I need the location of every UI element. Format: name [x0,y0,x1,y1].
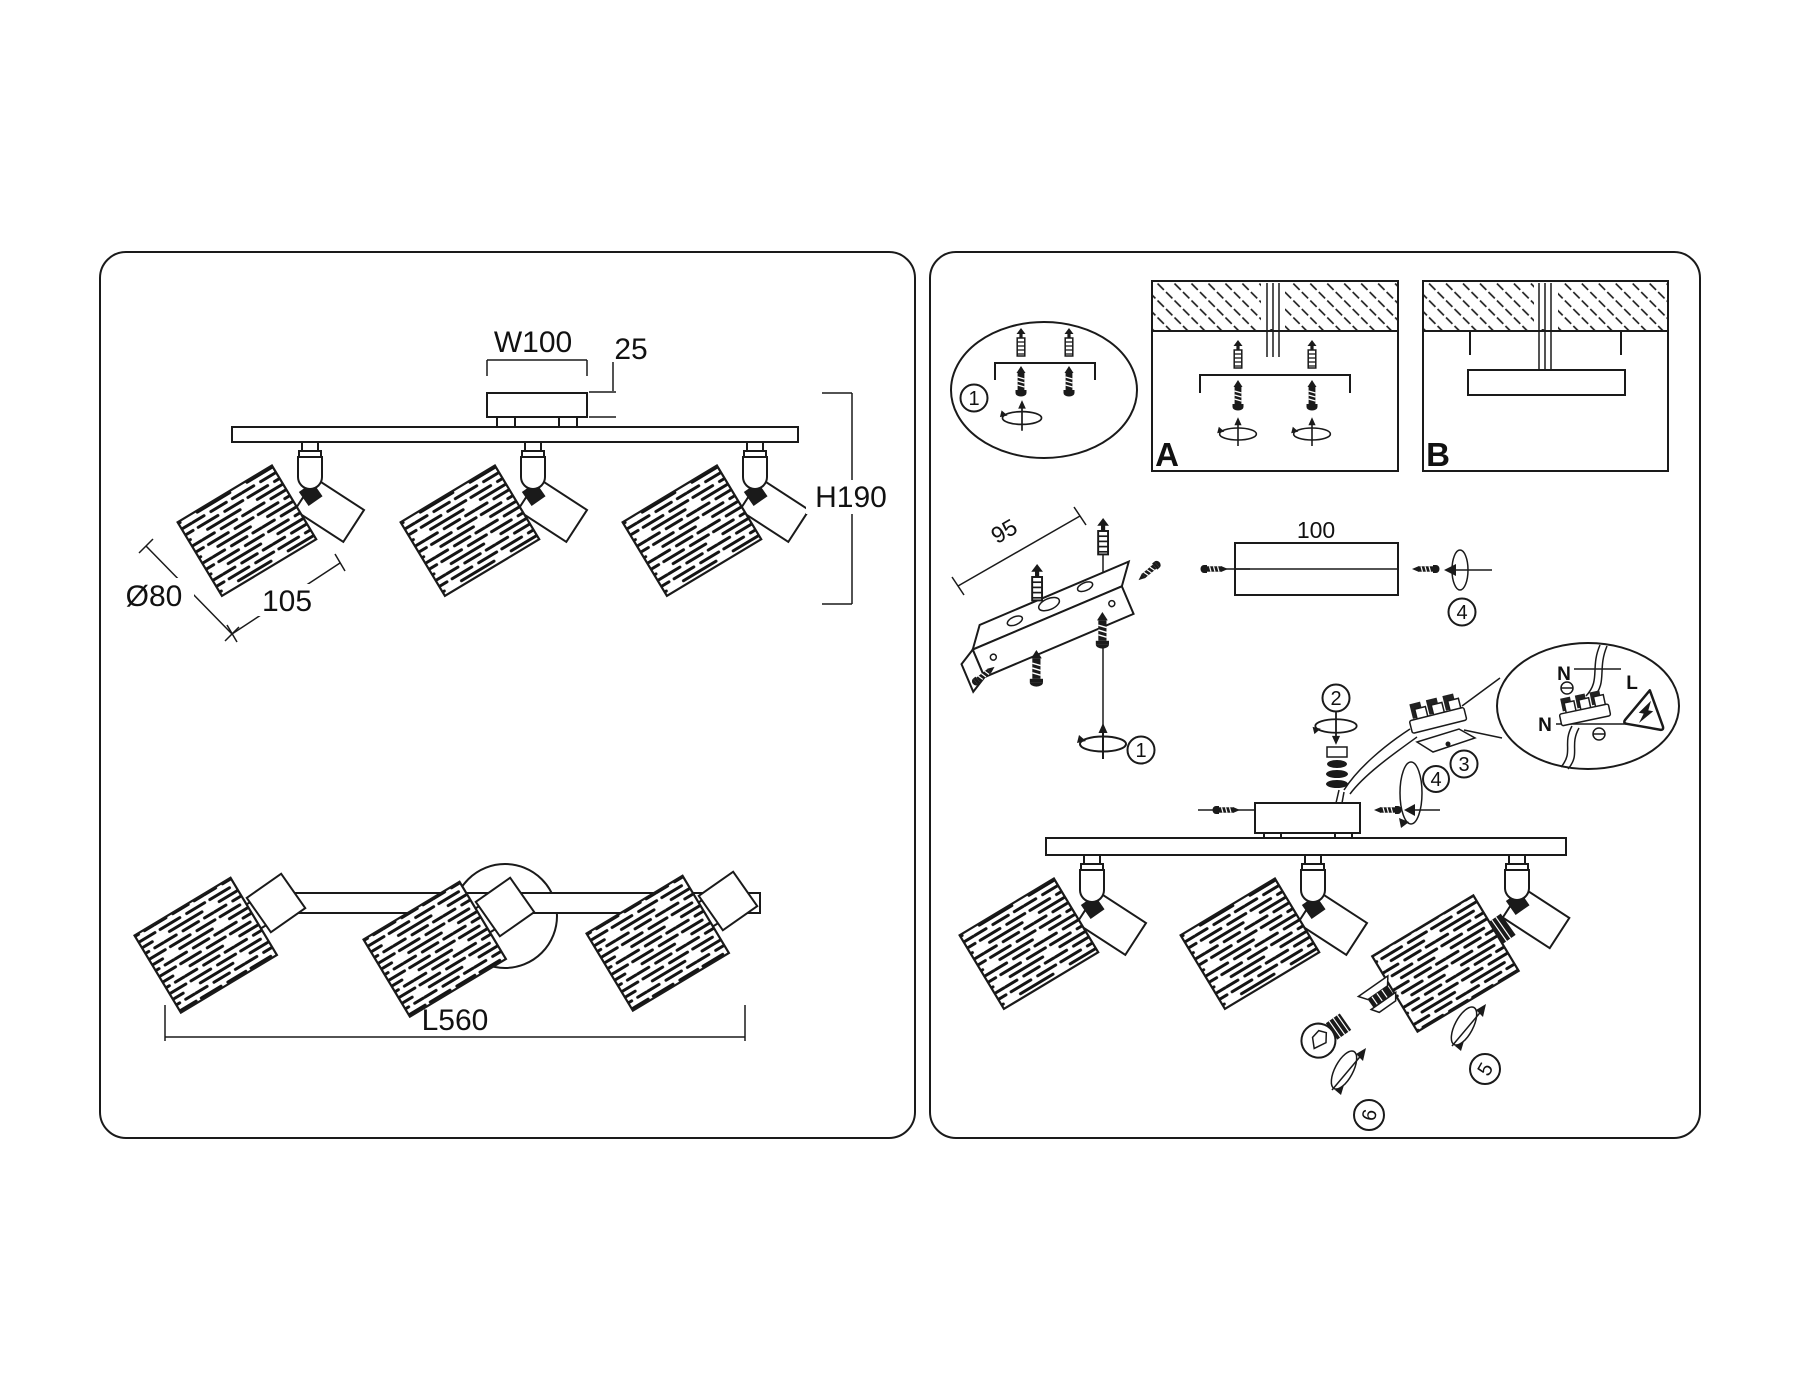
live-label: L [1626,673,1638,694]
step1-hardware-detail: 1 [951,322,1137,458]
svg-text:4: 4 [1430,769,1441,791]
mounting-plate [487,393,587,417]
step-badge-1b: 1 [1128,737,1155,764]
svg-text:3: 3 [1458,754,1469,776]
svg-text:4: 4 [1456,602,1467,624]
diagram-canvas: W100 25 H190 [0,0,1800,1400]
step-badge-5: 5 [1470,1054,1500,1084]
mounting-bar-outline [1468,370,1625,395]
step-badge-4: 4 [1449,599,1476,626]
diagram-page: W100 25 H190 [0,0,1800,1400]
svg-text:2: 2 [1330,688,1341,710]
height-label: H190 [815,481,887,514]
step-badge-2: 2 [1323,685,1350,712]
width-label: W100 [494,326,572,359]
ceiling-track-bar [1046,838,1566,855]
neutral2-label: N [1538,715,1552,736]
plate-foot [497,417,515,427]
mount-option-a: A [1152,281,1398,473]
plate-foot [559,417,577,427]
step-badge-4b: 4 [1423,766,1449,792]
svg-text:1: 1 [968,388,979,410]
shade-diameter-label: Ø80 [126,580,183,613]
variant-a-label: A [1155,436,1179,473]
mount-option-b: B [1423,281,1668,473]
left-panel-dimensions: W100 25 H190 [100,252,915,1138]
right-panel-installation: 1 A [930,252,1700,1138]
bar-length-label: 100 [1297,517,1335,543]
shade-length-label: 105 [262,585,312,618]
step-badge-6: 6 [1354,1100,1384,1130]
ceiling-track-bar [232,427,798,442]
step-badge-1: 1 [961,385,988,412]
plate-thickness-label: 25 [614,333,647,366]
svg-text:1: 1 [1135,740,1146,762]
length-label: L560 [422,1004,489,1037]
variant-b-label: B [1426,436,1450,473]
step-badge-3: 3 [1451,751,1478,778]
mounting-box [1255,803,1360,833]
